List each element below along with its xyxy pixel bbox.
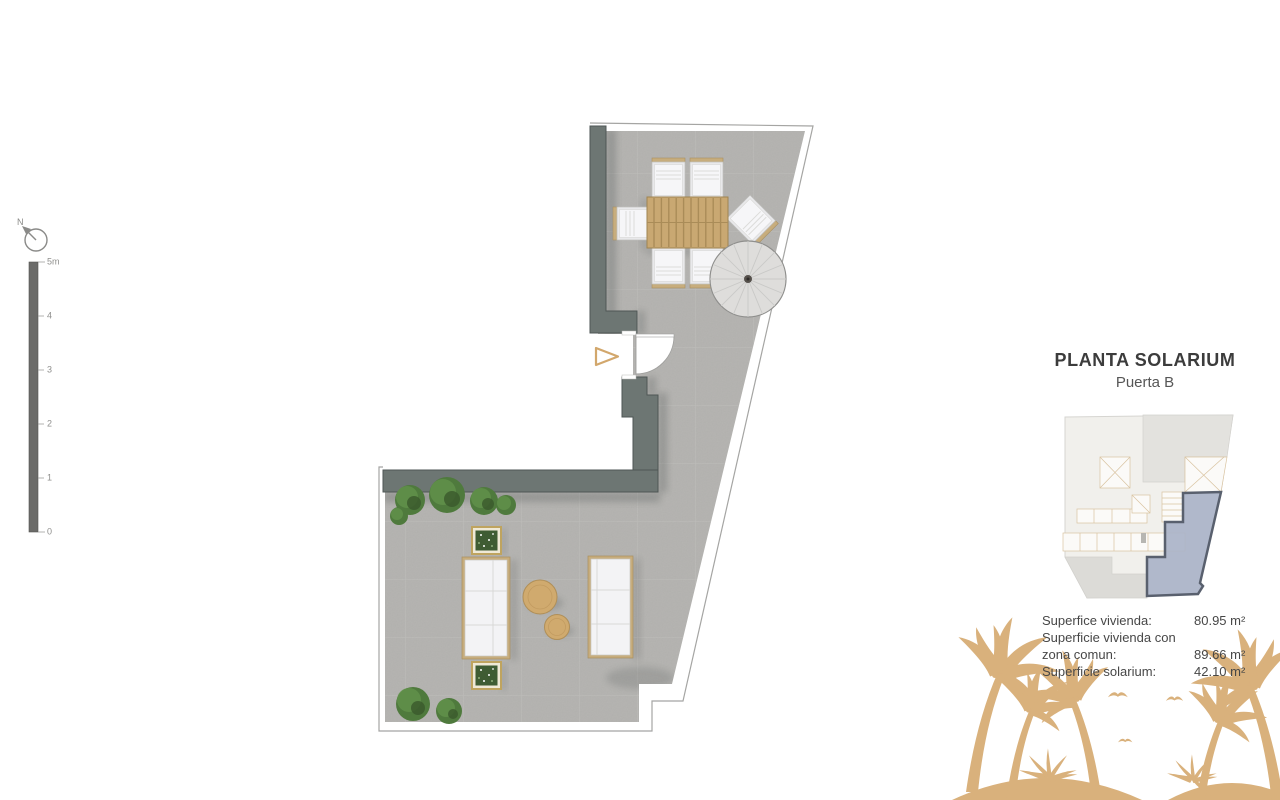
surface-label: Superficie solarium: xyxy=(1042,663,1194,680)
bush xyxy=(396,687,430,721)
bird-icon xyxy=(1108,692,1128,697)
north-label: N xyxy=(17,217,24,227)
surface-row: Superficie vivienda con zona comun: 89.6… xyxy=(1042,629,1254,663)
planter-top xyxy=(472,527,501,554)
lounge-chair xyxy=(690,158,723,198)
bird-icon xyxy=(1166,697,1183,701)
bush xyxy=(496,495,516,515)
sofa-left xyxy=(462,557,510,659)
surface-value: 42.10 m² xyxy=(1194,663,1254,680)
coffee-table-large xyxy=(523,580,557,614)
scale-tick-label: 1 xyxy=(47,472,52,482)
surface-row: Superficie solarium: 42.10 m² xyxy=(1042,663,1254,680)
scale-tick-label: 0 xyxy=(47,526,52,536)
dining-table xyxy=(647,197,728,248)
coffee-table-small xyxy=(545,615,570,640)
scale-bar: 5m 4 3 2 1 0 xyxy=(29,256,60,536)
scale-tick-label: 2 xyxy=(47,418,52,428)
surface-label: Superfice vivienda: xyxy=(1042,612,1194,629)
wall-lower xyxy=(383,470,658,492)
scale-tick-label: 4 xyxy=(47,310,52,320)
bush xyxy=(429,477,465,513)
plan-title: PLANTA SOLARIUM xyxy=(1030,350,1260,371)
lounge-chair xyxy=(652,158,685,198)
north-indicator: N xyxy=(17,217,47,251)
entrance-marker xyxy=(596,348,618,365)
surface-value: 80.95 m² xyxy=(1194,612,1254,629)
bird-icon xyxy=(1118,739,1132,743)
surface-summary: Superfice vivienda: 80.95 m² Superficie … xyxy=(1042,612,1254,680)
bush xyxy=(470,487,498,515)
surface-row: Superfice vivienda: 80.95 m² xyxy=(1042,612,1254,629)
plan-subtitle: Puerta B xyxy=(1030,374,1260,391)
scale-tick-label: 3 xyxy=(47,364,52,374)
planter-bottom xyxy=(472,662,501,689)
birds xyxy=(1108,692,1183,742)
surface-value: 89.66 m² xyxy=(1194,646,1254,663)
scale-tick-label: 5m xyxy=(47,256,60,266)
floor-plan-canvas: N 5m 4 3 2 1 0 xyxy=(0,0,1280,800)
key-plan xyxy=(1063,415,1233,598)
bush xyxy=(436,698,462,724)
sofa-right xyxy=(588,556,633,658)
parasol xyxy=(710,241,786,317)
bush xyxy=(390,507,408,525)
sand-mound xyxy=(952,778,1142,800)
floorplan-page: N 5m 4 3 2 1 0 xyxy=(0,0,1280,800)
surface-label: Superficie vivienda con zona comun: xyxy=(1042,629,1194,663)
door-leaf xyxy=(636,334,674,337)
lounge-chair xyxy=(652,248,685,288)
sand-mound xyxy=(1168,783,1280,800)
